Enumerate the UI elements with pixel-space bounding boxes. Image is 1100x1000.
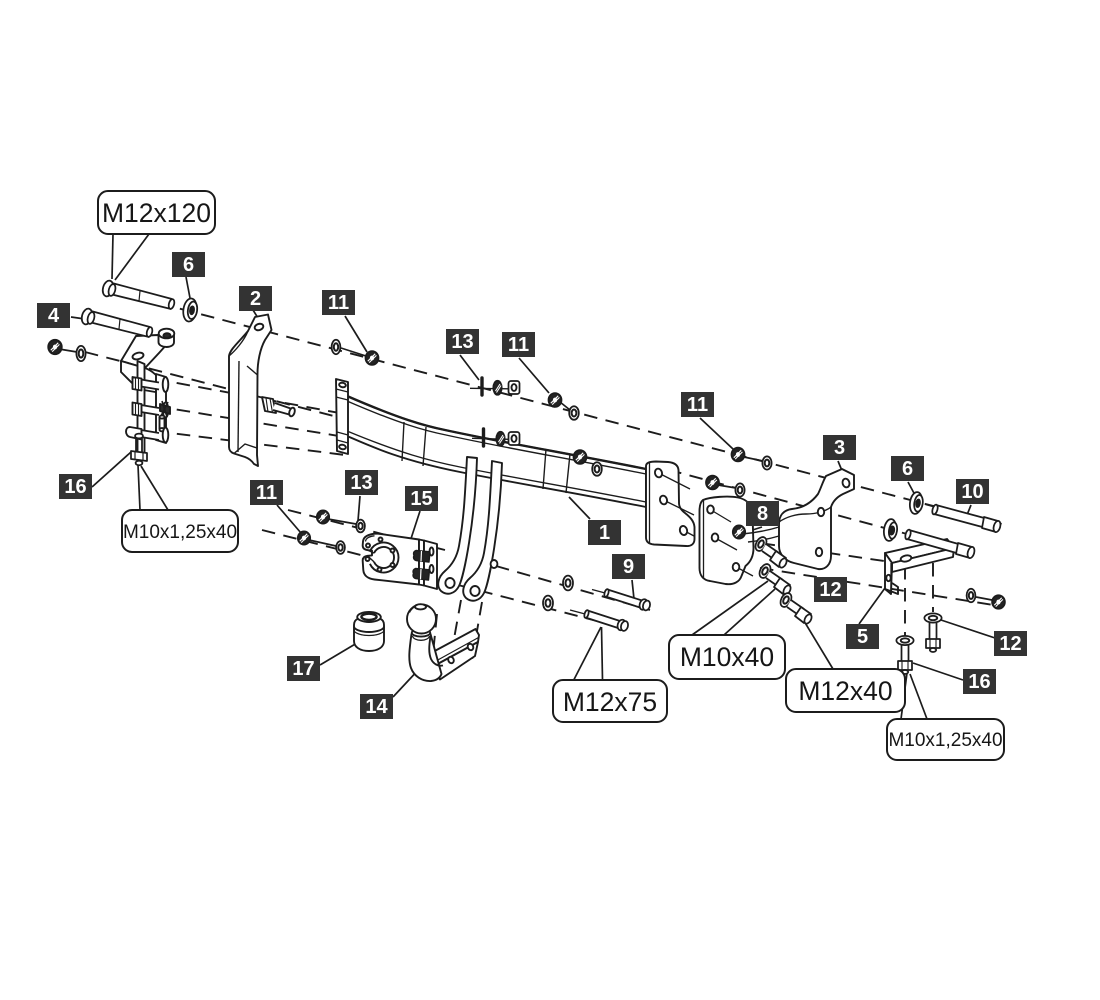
svg-text:6: 6	[902, 458, 913, 480]
svg-text:3: 3	[834, 437, 845, 459]
svg-text:M12x75: M12x75	[563, 687, 657, 717]
svg-text:15: 15	[410, 488, 432, 510]
svg-text:13: 13	[350, 472, 372, 494]
svg-text:14: 14	[365, 696, 388, 718]
svg-text:M10x40: M10x40	[680, 642, 774, 672]
svg-text:M10x1,25x40: M10x1,25x40	[123, 522, 237, 543]
svg-text:M10x1,25x40: M10x1,25x40	[888, 730, 1002, 751]
svg-text:5: 5	[857, 626, 868, 648]
svg-text:16: 16	[968, 671, 990, 693]
svg-text:1: 1	[599, 522, 610, 544]
svg-text:6: 6	[183, 254, 194, 276]
svg-text:9: 9	[623, 556, 634, 578]
svg-text:12: 12	[999, 633, 1021, 655]
svg-text:12: 12	[819, 579, 841, 601]
svg-text:13: 13	[451, 331, 473, 353]
svg-text:11: 11	[256, 482, 277, 504]
svg-text:17: 17	[292, 658, 314, 680]
svg-text:11: 11	[687, 394, 708, 416]
svg-text:M12x40: M12x40	[798, 676, 892, 706]
svg-text:11: 11	[328, 292, 349, 314]
svg-text:11: 11	[508, 334, 529, 356]
svg-text:M12x120: M12x120	[102, 198, 211, 228]
svg-text:16: 16	[64, 476, 86, 498]
svg-text:2: 2	[250, 288, 261, 310]
svg-text:4: 4	[48, 305, 60, 327]
svg-text:10: 10	[961, 481, 983, 503]
svg-text:8: 8	[757, 503, 768, 525]
